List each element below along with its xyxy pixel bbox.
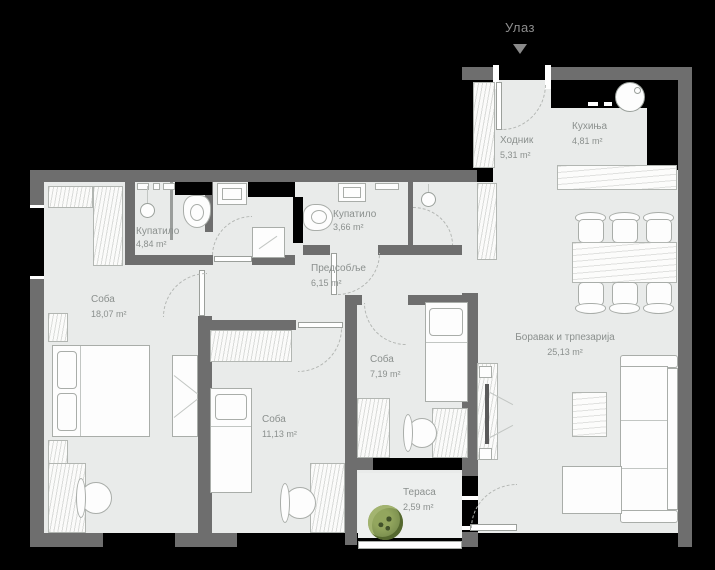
desk-chair-back [280,483,290,523]
floor-plan: Улаз [0,0,715,570]
toilet-cistern [175,182,212,195]
bathroom-sink-basin [222,188,242,200]
sofa-cushion-line [621,468,667,469]
terrace-wall-stub [462,462,478,476]
dining-chair [578,219,604,243]
toilet-bowl [311,210,327,224]
stove-knob [588,102,598,106]
room-label-soba-11: Соба 11,13 m² [262,412,297,441]
outer-wall-right [678,67,692,547]
dining-chair [609,303,640,314]
wall-room3-top [198,320,296,330]
wardrobe [210,330,292,362]
plumbing-wall [248,182,295,197]
wall-room3-room2 [345,295,357,545]
speaker [479,448,492,460]
wardrobe [48,186,93,208]
kitchen-tall-unit-black [647,80,678,170]
bathroom1-wall-bottom [125,255,213,265]
bed-fold-line [211,426,251,427]
kitchen-sink [615,82,645,112]
dining-chair [643,303,674,314]
room-label-kupatilo2: Купатило 3,66 m² [333,209,376,233]
room-label-hodnik: Ходник 5,31 m² [500,133,533,162]
outer-wall-top-left-block [30,170,477,182]
entrance-label: Улаз [505,20,535,35]
hallway-wardrobe [473,82,495,168]
nightstand [48,440,68,465]
bed-fold-line [80,346,81,436]
shower-stem [147,186,148,204]
sofa-armrest [620,510,678,523]
dining-table [572,242,677,283]
bathroom2-wall-bottom [303,245,330,255]
bathroom1-wall-left [125,182,135,258]
desk [432,408,468,458]
desk-chair-back [76,478,86,518]
window-left [30,207,44,277]
pillow [429,308,463,336]
wall-room2-bottom [345,458,373,470]
dining-chair [612,219,638,243]
room-label-soba-7: Соба 7,19 m² [370,352,401,381]
pillow [215,394,247,420]
nightstand [48,313,68,342]
hallway-wardrobe [477,183,497,260]
room-label-soba-18: Соба 18,07 m² [91,292,127,321]
kitchen-sink-faucet [634,87,641,94]
glass-wall-post [462,496,478,500]
dining-chair [575,303,606,314]
entrance-wall-left [462,67,493,80]
sofa-chaise [562,466,622,514]
pillow [57,351,77,389]
room-label-kuhinja: Кухиња 4,81 m² [572,119,607,148]
sofa-cushion-line [621,420,667,421]
bed-fold-line [426,342,467,343]
tv [485,384,489,444]
bathroom-fitting [153,183,160,190]
bathroom-fitting [163,183,175,190]
toilet-bowl [190,204,204,221]
bathroom2-wall-bottom [378,245,462,255]
coffee-table [572,392,607,437]
room-label-kupatilo1: Купатило 4,84 m² [136,226,179,250]
window-room2-terrace [373,458,462,470]
bathroom-shelf [375,183,399,190]
dining-chair [646,219,672,243]
open-wardrobe [172,355,198,437]
sofa-seats [620,366,668,512]
window-frame [30,205,44,208]
terrace-railing [358,541,462,549]
outer-wall-bottom [30,533,103,547]
wardrobe [357,398,390,458]
window-frame [30,276,44,279]
bathroom1-door-leaf [214,256,252,262]
terrace-wall-stub [462,532,478,547]
plumbing-wall [293,197,303,243]
plant [368,505,403,540]
room-label-terasa: Тераса 2,59 m² [403,485,436,514]
speaker [479,366,492,378]
shower-head [140,203,155,218]
stove-knob [604,102,612,106]
wardrobe [93,186,123,266]
desk-chair-back [403,414,413,452]
room-label-predsoblje: Предсобље 6,15 m² [311,261,366,290]
shower-head [421,192,436,207]
kitchen-counter [557,165,677,190]
pillow [57,393,77,431]
entrance-arrow-icon [513,44,527,54]
bathroom-sink-basin [343,187,361,198]
room-label-boravak: Боравак и трпезарија 25,13 m² [482,330,648,359]
